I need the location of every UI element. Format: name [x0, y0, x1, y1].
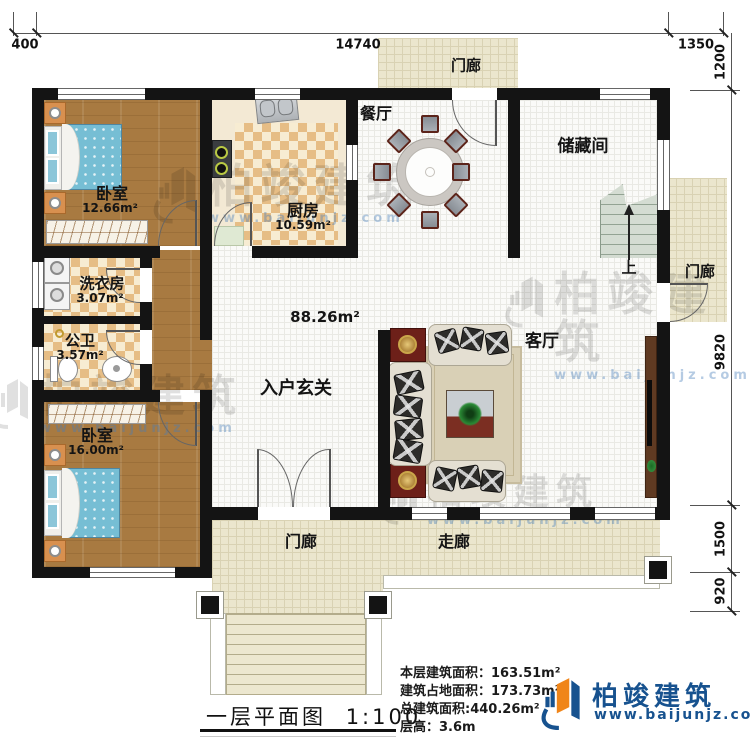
title-underline	[200, 729, 396, 732]
room-label-foyer: 入户玄关	[260, 374, 332, 400]
window	[595, 507, 655, 520]
brand-logo-icon	[538, 674, 586, 734]
plan-title-text: 一层平面图	[206, 705, 326, 729]
plant-icon	[647, 460, 656, 472]
burner-icon	[215, 162, 228, 175]
window	[412, 507, 447, 520]
brand-logo-icon	[0, 374, 34, 430]
sofa-cushion	[432, 466, 458, 492]
window	[600, 88, 650, 100]
info-total-area-label: 总建筑面积:	[400, 702, 470, 717]
door-opening	[452, 88, 497, 100]
porch-bottom-floor	[212, 520, 660, 575]
lamp-icon	[49, 449, 61, 461]
sofa-cushion	[459, 326, 484, 351]
window	[90, 567, 175, 578]
burner-icon	[215, 146, 228, 159]
column	[364, 591, 392, 619]
plant-icon	[458, 402, 482, 426]
info-height-value: 3.6m	[439, 720, 476, 735]
dining-chair	[421, 211, 439, 229]
dining-chair	[421, 115, 439, 133]
room-area-kitchen: 10.59m²	[275, 218, 331, 232]
dim-9820: 9820	[714, 334, 729, 370]
dim-1350: 1350	[678, 38, 714, 53]
window	[657, 140, 670, 210]
dim-400: 400	[11, 38, 38, 53]
sink-basin-icon	[277, 97, 294, 115]
wardrobe	[48, 404, 146, 424]
room-label-storage: 储藏间	[558, 132, 609, 157]
info-height: 层高：3.6m	[400, 716, 476, 735]
washer-drum-icon	[50, 261, 64, 275]
window	[58, 88, 145, 100]
column	[196, 591, 224, 619]
room-label-living: 客厅	[525, 327, 559, 352]
room-label-dining: 餐厅	[360, 100, 392, 124]
sink-drain-icon	[113, 365, 120, 372]
dim-1200: 1200	[714, 44, 729, 80]
table-lamp-icon	[398, 471, 417, 490]
room-area-laundry: 3.07m²	[76, 291, 123, 305]
room-area-bedroom2: 16.00m²	[68, 443, 124, 457]
door-leaf	[329, 449, 331, 507]
window	[32, 347, 44, 380]
dim-920: 920	[714, 577, 729, 604]
pass-through	[346, 145, 358, 180]
stair-arrow-head-icon	[624, 204, 634, 215]
door-opening	[258, 507, 330, 520]
room-area-bedroom1: 12.66m²	[82, 201, 138, 215]
window	[32, 262, 44, 308]
plan-title: 一层平面图 1:100	[206, 701, 421, 731]
info-total-area-value: 440.26m²	[470, 702, 539, 717]
window	[480, 507, 570, 520]
brand-logo-icon	[502, 270, 549, 330]
dining-chair	[373, 163, 391, 181]
room-area-bathroom: 3.57m²	[56, 348, 103, 362]
info-footprint: 建筑占地面积：173.73m²	[400, 680, 560, 699]
lazy-susan-icon	[425, 167, 435, 177]
steps-left-border	[210, 613, 226, 695]
brand-url: www.baijunjz.com	[594, 707, 750, 723]
window	[255, 88, 300, 100]
sofa-cushion	[392, 438, 423, 465]
column	[644, 556, 672, 584]
dim-1500: 1500	[714, 521, 729, 557]
porch-bottom-deep-floor	[212, 575, 383, 615]
entry-steps	[226, 613, 366, 695]
corridor-step-edge	[383, 575, 660, 589]
table-lamp-icon	[398, 335, 417, 354]
pillow	[46, 503, 59, 529]
lamp-icon	[49, 197, 61, 209]
info-floor-area-label: 本层建筑面积：	[400, 666, 491, 681]
title-underline-2	[200, 736, 396, 737]
sofa-cushion	[480, 469, 504, 493]
room-label-porch-top: 门廊	[451, 55, 481, 76]
info-floor-area: 本层建筑面积：163.51m²	[400, 662, 560, 681]
porch-top-floor	[378, 38, 518, 88]
room-label-corridor: 走廊	[438, 528, 470, 552]
stairs-up-label: 上	[621, 257, 636, 278]
sofa-cushion	[393, 394, 424, 419]
info-total-area: 总建筑面积:440.26m²	[400, 698, 540, 717]
watermark-url: www.baijunjz.com	[39, 422, 243, 436]
dim-14740: 14740	[335, 38, 380, 53]
pillow	[46, 158, 59, 184]
interior-area-label: 88.26m²	[290, 308, 360, 326]
room-label-porch-bottom: 门廊	[285, 528, 317, 552]
stair-arrow-line	[628, 214, 630, 260]
room-label-porch-right: 门廊	[685, 261, 715, 282]
info-height-label: 层高：	[400, 720, 439, 735]
sofa-cushion	[485, 331, 510, 356]
lamp-icon	[49, 545, 61, 557]
tv-icon	[647, 380, 652, 446]
wardrobe	[46, 220, 148, 244]
washer-drum-icon	[50, 288, 64, 302]
sofa-cushion	[456, 464, 481, 489]
steps-right-border	[366, 613, 382, 695]
towel-ring-icon	[55, 329, 64, 338]
pillow	[46, 474, 59, 500]
door-opening	[657, 283, 670, 322]
floor-plan-canvas: 柏竣建筑www.baijunjz.com 柏竣建筑www.baijunjz.co…	[0, 0, 750, 746]
lamp-icon	[49, 107, 61, 119]
dining-chair	[452, 163, 470, 181]
info-footprint-label: 建筑占地面积：	[400, 684, 491, 699]
sink-basin-icon	[259, 99, 276, 117]
pillow	[46, 130, 59, 156]
